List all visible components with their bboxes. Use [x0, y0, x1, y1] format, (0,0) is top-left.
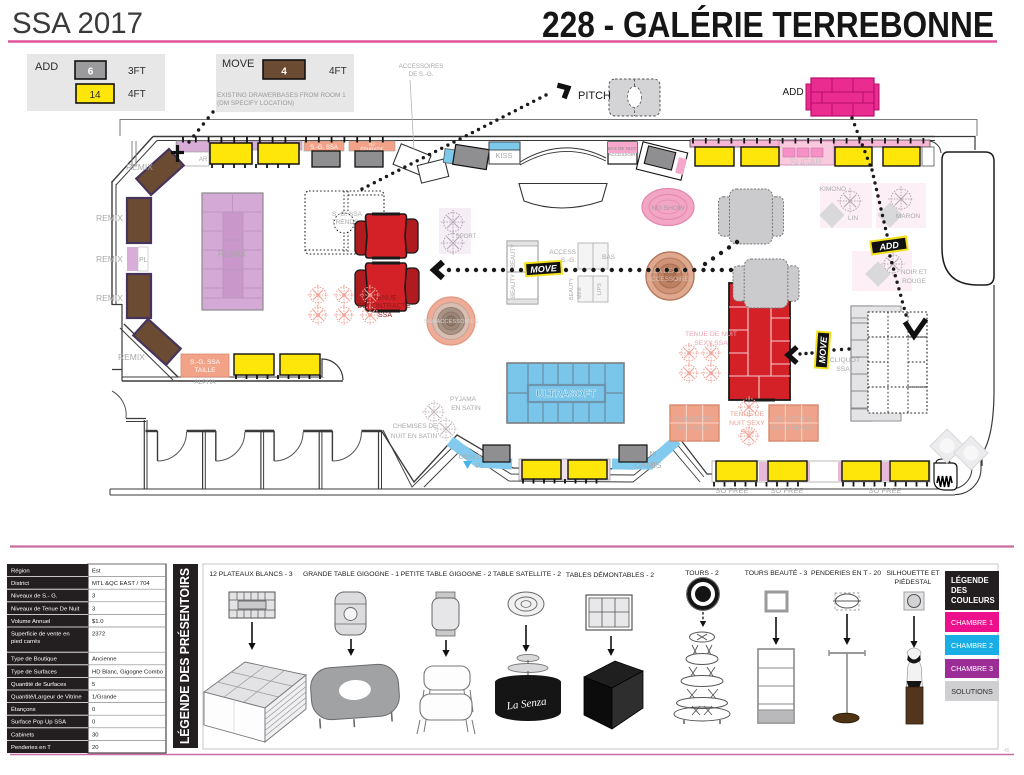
svg-text:4FT: 4FT	[128, 89, 146, 100]
svg-text:NO SHOW: NO SHOW	[651, 205, 685, 212]
svg-text:AR: AR	[199, 157, 208, 163]
svg-text:TOURS BEAUTÉ - 3: TOURS BEAUTÉ - 3	[745, 568, 808, 577]
svg-text:PENDERIES EN T - 20: PENDERIES EN T - 20	[811, 570, 881, 577]
svg-text:SSA SEXY: SSA SEXY	[677, 425, 711, 432]
svg-text:SO FREE: SO FREE	[869, 486, 902, 495]
svg-text:Type de Surfaces: Type de Surfaces	[11, 669, 57, 675]
svg-text:SSA: SSA	[740, 429, 754, 436]
svg-text:NI: NI	[650, 451, 657, 458]
svg-text:SSA TRENDY: SSA TRENDY	[772, 425, 815, 432]
svg-text:Surface Pop Up SSA: Surface Pop Up SSA	[11, 720, 66, 726]
svg-text:OBSES: OBSES	[459, 454, 482, 461]
svg-text:4: 4	[281, 67, 287, 78]
svg-text:ACCESSOIRES: ACCESSOIRES	[399, 63, 444, 70]
svg-text:SO FREE: SO FREE	[771, 486, 804, 495]
svg-text:HD Blanc, Gigogne Combo: HD Blanc, Gigogne Combo	[92, 669, 164, 675]
svg-text:District: District	[11, 581, 29, 587]
svg-text:Type de Boutique: Type de Boutique	[11, 657, 58, 663]
svg-text:PITCH: PITCH	[578, 90, 611, 102]
svg-text:COULEURS: COULEURS	[951, 596, 995, 605]
svg-text:CHAMBRE 3: CHAMBRE 3	[951, 664, 993, 673]
svg-text:MTL &QC EAST / 704: MTL &QC EAST / 704	[92, 581, 150, 587]
svg-text:Superficie de vente en: Superficie de vente en	[11, 632, 70, 638]
svg-text:Penderies en T: Penderies en T	[11, 745, 51, 751]
svg-text:SSA ACCESSOIRES: SSA ACCESSOIRES	[424, 319, 479, 325]
svg-text:CULOTTES: CULOTTES	[775, 416, 812, 423]
svg-text:ADD: ADD	[782, 87, 803, 98]
svg-text:KISS: KISS	[495, 151, 512, 160]
svg-text:SSA 2017: SSA 2017	[12, 7, 143, 40]
svg-text:20: 20	[92, 745, 99, 751]
svg-text:DES: DES	[951, 586, 967, 595]
svg-text:ACCESSOIRES: ACCESSOIRES	[647, 276, 693, 283]
svg-text:SSA: SSA	[836, 366, 850, 373]
svg-text:SOLUTIONS: SOLUTIONS	[951, 687, 993, 696]
svg-text:ACCESS: ACCESS	[549, 249, 576, 256]
svg-text:GRANDE TABLE GIGOGNE - 1: GRANDE TABLE GIGOGNE - 1	[303, 571, 399, 578]
svg-text:TABLES DÉMONTABLES - 2: TABLES DÉMONTABLES - 2	[566, 570, 654, 579]
svg-text:PETITE TABLE GIGOGNE - 2: PETITE TABLE GIGOGNE - 2	[401, 571, 492, 578]
svg-text:S.-G. SSA: S.-G. SSA	[190, 359, 221, 366]
svg-text:SO FREE: SO FREE	[716, 486, 749, 495]
svg-text:S.-G. SSA: S.-G. SSA	[310, 145, 338, 151]
svg-text:SUGAR: SUGAR	[790, 157, 823, 167]
svg-text:MINI: MINI	[577, 287, 583, 299]
svg-text:Niveaux de S.- G.: Niveaux de S.- G.	[11, 594, 58, 600]
svg-text:3FT: 3FT	[128, 66, 146, 77]
svg-text:DÉCONTRACTÉ: DÉCONTRACTÉ	[357, 301, 411, 310]
svg-text:NUIT EN SATIN: NUIT EN SATIN	[391, 433, 438, 440]
svg-text:BEAUTY: BEAUTY	[511, 274, 517, 298]
svg-text:TAILLE: TAILLE	[194, 367, 216, 374]
svg-text:Quantité de Surfaces: Quantité de Surfaces	[11, 682, 66, 688]
svg-text:TENUE DE NUIT: TENUE DE NUIT	[685, 331, 737, 338]
svg-text:EN SATIN: EN SATIN	[451, 405, 481, 412]
svg-text:REMIX: REMIX	[96, 254, 123, 264]
svg-text:PIÉDESTAL: PIÉDESTAL	[895, 577, 932, 586]
svg-text:ROUGE: ROUGE	[902, 278, 927, 285]
svg-text:ULTRASOFT: ULTRASOFT	[536, 389, 596, 400]
svg-text:REMIX: REMIX	[126, 162, 153, 172]
svg-text:MARON: MARON	[896, 213, 921, 220]
svg-text:Région: Région	[11, 569, 30, 575]
svg-text:LIPS: LIPS	[597, 283, 603, 295]
svg-text:1/Grande: 1/Grande	[92, 695, 117, 701]
svg-text:REMIX: REMIX	[96, 213, 123, 223]
svg-text:KIMONO: KIMONO	[820, 186, 846, 193]
svg-text:Volume Annuel: Volume Annuel	[11, 619, 50, 625]
svg-text:pied carrés: pied carrés	[11, 639, 40, 645]
svg-text:CHEMISES DE: CHEMISES DE	[393, 423, 438, 430]
svg-text:REMIX: REMIX	[118, 352, 145, 362]
svg-text:45: 45	[1004, 748, 1010, 754]
svg-text:Ancienne: Ancienne	[92, 657, 117, 663]
svg-text:CHAMBRE 2: CHAMBRE 2	[951, 641, 993, 650]
svg-text:LIN: LIN	[848, 215, 858, 222]
svg-text:CLIQUOT: CLIQUOT	[830, 357, 860, 364]
svg-text:S.-G.: S.-G.	[561, 257, 576, 264]
svg-text:EXISTING DRAWERBASES FROM ROOM: EXISTING DRAWERBASES FROM ROOM 1	[217, 92, 346, 99]
svg-text:ADD: ADD	[35, 61, 58, 73]
svg-text:BEAUTY: BEAUTY	[569, 278, 575, 300]
svg-text:30: 30	[92, 732, 99, 738]
svg-text:TENUE DE: TENUE DE	[730, 411, 765, 418]
svg-text:Est: Est	[92, 569, 101, 575]
svg-text:ACCESSOIR: ACCESSOIR	[608, 152, 636, 157]
svg-text:NUIT SEXY: NUIT SEXY	[729, 420, 765, 427]
svg-text:MOVE: MOVE	[530, 263, 558, 275]
svg-text:CULOTTES: CULOTTES	[676, 416, 713, 423]
svg-text:PL: PL	[476, 463, 484, 470]
svg-text:TABLE SATELLITE - 2: TABLE SATELLITE - 2	[493, 571, 561, 578]
svg-text:Quantité/Largeur de Vitrine: Quantité/Largeur de Vitrine	[11, 695, 82, 701]
svg-text:6: 6	[88, 67, 94, 78]
svg-text:DE S.-G.: DE S.-G.	[409, 71, 434, 78]
svg-text:REMIX: REMIX	[96, 293, 123, 303]
svg-text:Étançons: Étançons	[11, 706, 36, 713]
svg-text:228 - GALÉRIE TERREBONNE: 228 - GALÉRIE TERREBONNE	[542, 4, 994, 45]
svg-text:4FT: 4FT	[329, 66, 347, 77]
svg-text:14: 14	[89, 90, 101, 101]
svg-text:REMIX: REMIX	[218, 249, 247, 259]
svg-text:NOIR ET: NOIR ET	[901, 269, 927, 276]
svg-text:TOURS - 2: TOURS - 2	[685, 570, 719, 577]
svg-text:BEAUTY: BEAUTY	[511, 244, 517, 268]
svg-text:SPORT: SPORT	[456, 234, 477, 240]
svg-text:Cabinets: Cabinets	[11, 732, 34, 738]
svg-text:LÉGENDE DES PRÉSENTOIRS: LÉGENDE DES PRÉSENTOIRS	[177, 568, 192, 744]
svg-text:BAS DE NUIT: BAS DE NUIT	[608, 146, 637, 151]
svg-text:MOVE: MOVE	[222, 58, 254, 70]
svg-text:$1.0: $1.0	[92, 619, 104, 625]
svg-text:BAS: BAS	[602, 254, 616, 261]
svg-text:LÉGENDE: LÉGENDE	[951, 576, 989, 585]
svg-text:12 PLATEAUX BLANCS - 3: 12 PLATEAUX BLANCS - 3	[209, 571, 293, 578]
svg-text:(DM SPECIFY LOCATION): (DM SPECIFY LOCATION)	[217, 100, 294, 107]
svg-text:PYJAMA: PYJAMA	[450, 396, 477, 403]
svg-text:ALPHA: ALPHA	[194, 379, 216, 386]
svg-text:PL: PL	[139, 257, 148, 264]
svg-text:Niveaux de Tenue De Nuit: Niveaux de Tenue De Nuit	[11, 606, 80, 612]
svg-text:MOVE: MOVE	[817, 335, 829, 363]
svg-text:S.-G. SSA: S.-G. SSA	[332, 211, 363, 218]
svg-text:CHAMBRE 1: CHAMBRE 1	[951, 618, 993, 627]
svg-text:2372: 2372	[92, 632, 105, 638]
svg-text:SILHOUETTE ET: SILHOUETTE ET	[886, 570, 939, 577]
